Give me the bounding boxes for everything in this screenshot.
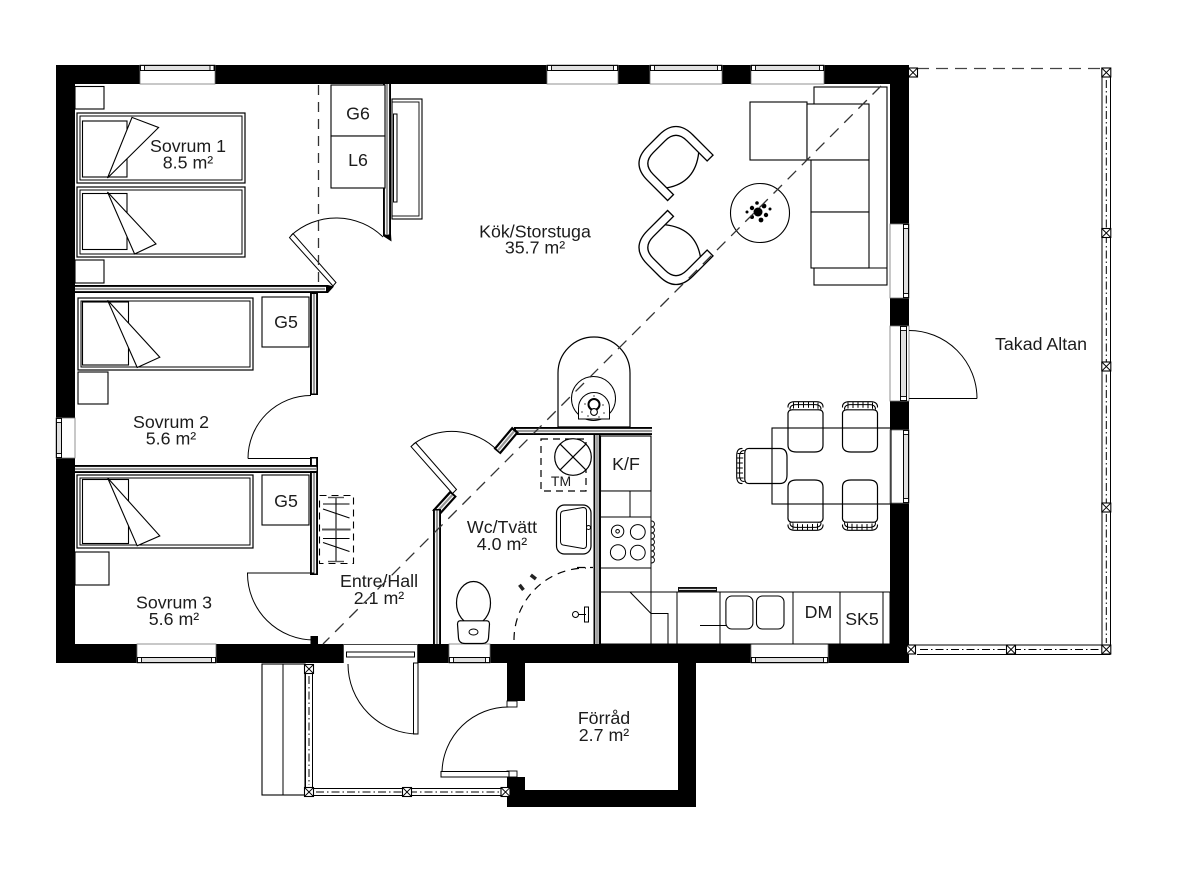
svg-text:DM: DM — [805, 602, 833, 622]
svg-text:K/F: K/F — [612, 454, 640, 474]
svg-text:8.5 m²: 8.5 m² — [163, 153, 213, 173]
svg-text:35.7 m²: 35.7 m² — [505, 238, 565, 258]
svg-text:SK5: SK5 — [845, 609, 879, 629]
svg-text:G6: G6 — [346, 104, 370, 124]
svg-text:2.1 m²: 2.1 m² — [354, 588, 404, 608]
svg-text:G5: G5 — [274, 312, 298, 332]
svg-text:L6: L6 — [348, 150, 368, 170]
svg-text:4.0 m²: 4.0 m² — [477, 534, 527, 554]
svg-text:5.6 m²: 5.6 m² — [149, 609, 199, 629]
svg-text:5.6 m²: 5.6 m² — [146, 429, 196, 449]
svg-text:Takad Altan: Takad Altan — [995, 334, 1087, 354]
svg-text:2.7 m²: 2.7 m² — [579, 725, 629, 745]
svg-text:TM: TM — [551, 473, 571, 489]
svg-text:G5: G5 — [274, 491, 298, 511]
